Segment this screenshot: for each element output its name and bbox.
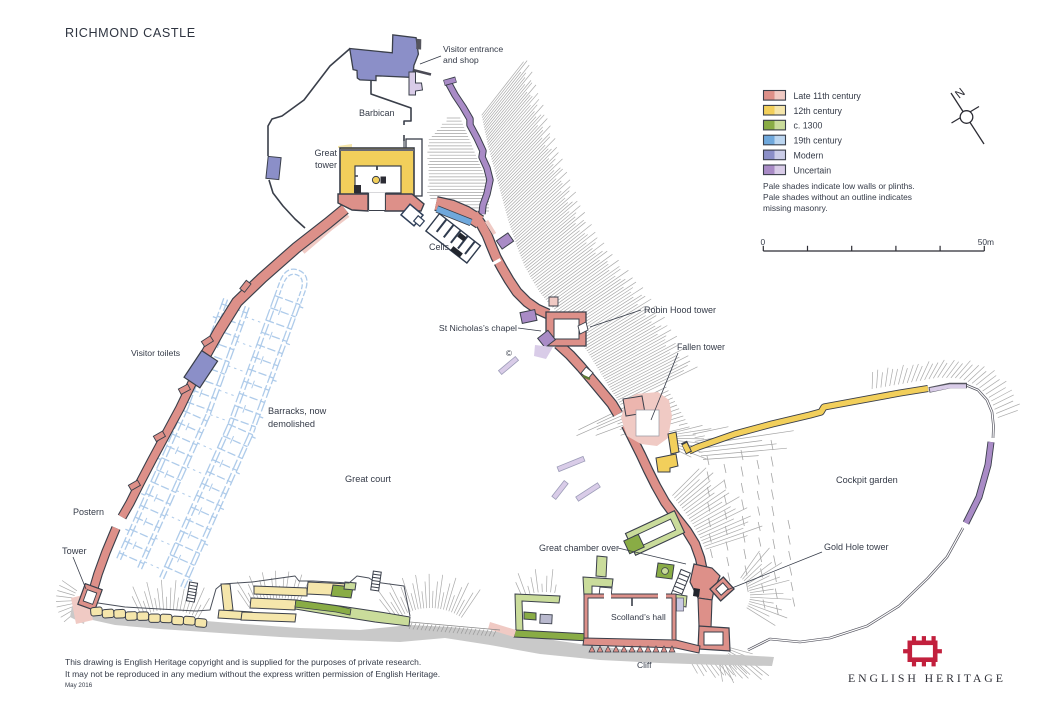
- svg-text:It may not be reproduced in an: It may not be reproduced in any medium w…: [65, 669, 440, 679]
- svg-text:Visitor entrance: Visitor entrance: [443, 44, 503, 54]
- svg-text:Scolland’s hall: Scolland’s hall: [611, 612, 666, 622]
- svg-text:50m: 50m: [978, 237, 994, 247]
- svg-text:Tower: Tower: [62, 546, 87, 556]
- svg-text:Visitor toilets: Visitor toilets: [131, 348, 181, 358]
- svg-text:Cockpit garden: Cockpit garden: [836, 475, 898, 485]
- svg-text:12th century: 12th century: [794, 106, 843, 116]
- svg-text:St Nicholas’s chapel: St Nicholas’s chapel: [439, 323, 517, 333]
- svg-text:Modern: Modern: [794, 151, 824, 161]
- svg-text:This drawing is English Herita: This drawing is English Heritage copyrig…: [65, 657, 421, 667]
- svg-text:RICHMOND CASTLE: RICHMOND CASTLE: [65, 26, 196, 40]
- svg-text:and shop: and shop: [443, 55, 479, 65]
- svg-text:Great court: Great court: [345, 474, 391, 484]
- svg-text:missing masonry.: missing masonry.: [763, 203, 828, 213]
- svg-text:0: 0: [761, 237, 766, 247]
- svg-text:Barracks, now: Barracks, now: [268, 406, 327, 416]
- svg-text:May 2016: May 2016: [65, 682, 93, 689]
- svg-text:19th century: 19th century: [794, 136, 843, 146]
- svg-text:Pale shades without an outline: Pale shades without an outline indicates: [763, 192, 912, 202]
- svg-text:Gold Hole tower: Gold Hole tower: [824, 542, 889, 552]
- svg-text:©: ©: [506, 349, 512, 358]
- svg-text:Barbican: Barbican: [359, 108, 395, 118]
- svg-text:c. 1300: c. 1300: [794, 121, 823, 131]
- svg-text:ENGLISH HERITAGE: ENGLISH HERITAGE: [848, 671, 1006, 685]
- svg-text:Uncertain: Uncertain: [794, 165, 832, 175]
- svg-text:Robin Hood tower: Robin Hood tower: [644, 305, 716, 315]
- svg-text:demolished: demolished: [268, 419, 315, 429]
- svg-text:Pale shades indicate low walls: Pale shades indicate low walls or plinth…: [763, 181, 915, 191]
- svg-text:Cliff: Cliff: [637, 660, 652, 670]
- svg-text:Late 11th century: Late 11th century: [794, 91, 862, 101]
- svg-text:Fallen tower: Fallen tower: [677, 342, 725, 352]
- svg-text:Great: Great: [314, 148, 337, 158]
- svg-text:Great chamber over: Great chamber over: [539, 543, 619, 553]
- svg-text:tower: tower: [315, 160, 337, 170]
- svg-text:Postern: Postern: [73, 507, 104, 517]
- svg-text:Cells: Cells: [429, 242, 450, 252]
